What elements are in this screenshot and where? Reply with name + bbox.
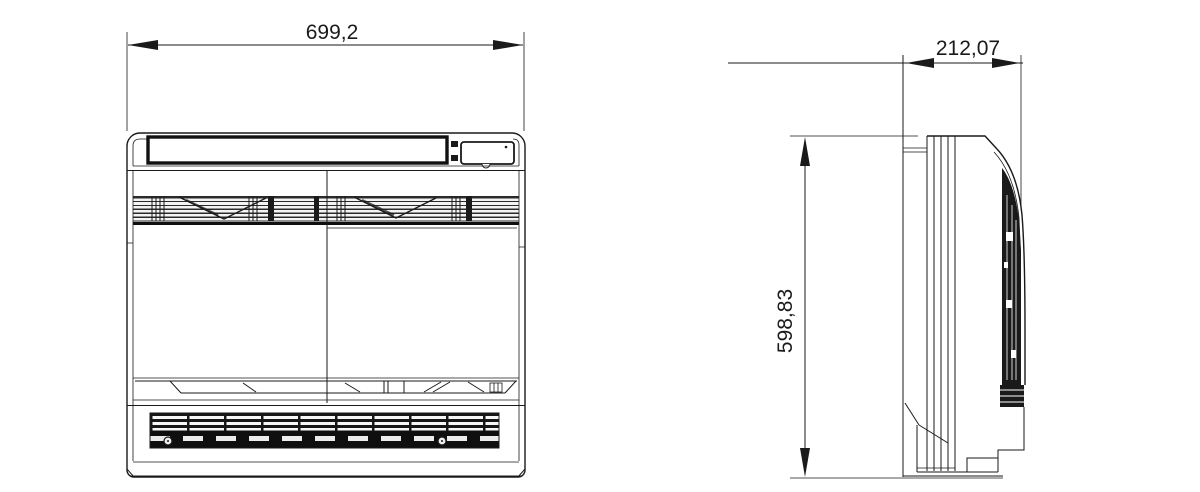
panel-button-bottom [451,155,458,161]
dimension-arrow-right-icon [493,40,523,50]
panel-button-top [451,141,458,147]
front-view: 699,2 [127,21,525,477]
side-height-dimension: 598,83 [774,136,1003,478]
front-width-dimension: 699,2 [127,21,524,131]
side-rear-fin-block [1000,385,1024,407]
front-body-outline [127,133,525,477]
side-front-panel-lines [927,136,955,471]
side-rear-grille [1002,168,1021,385]
side-height-label: 598,83 [774,289,797,353]
technical-drawing: 699,2 [0,0,1200,492]
front-top-outlet-slot [148,137,447,163]
side-view: 212,07 598,83 [728,37,1025,478]
front-bottom-grille-frame [150,413,499,448]
display-indicator-dot [505,146,508,149]
grille-screw-left-icon [164,437,172,445]
dimension-arrow-up-icon [800,137,810,166]
grille-screw-right-icon [438,437,446,445]
side-top-edge [927,136,997,149]
front-control-panel [451,141,514,168]
drawing-canvas: 699,2 [0,0,1200,492]
front-bottom-deflector [135,381,517,393]
display-window [461,142,514,164]
front-width-label: 699,2 [306,21,359,44]
dimension-arrow-down-icon [800,448,810,477]
side-depth-label: 212,07 [936,37,1000,60]
dimension-arrow-left-icon [128,40,158,50]
side-depth-dimension: 212,07 [728,37,1023,210]
dimension-arrow-left-icon [906,58,934,68]
front-inlet-grille-marks [152,196,472,221]
